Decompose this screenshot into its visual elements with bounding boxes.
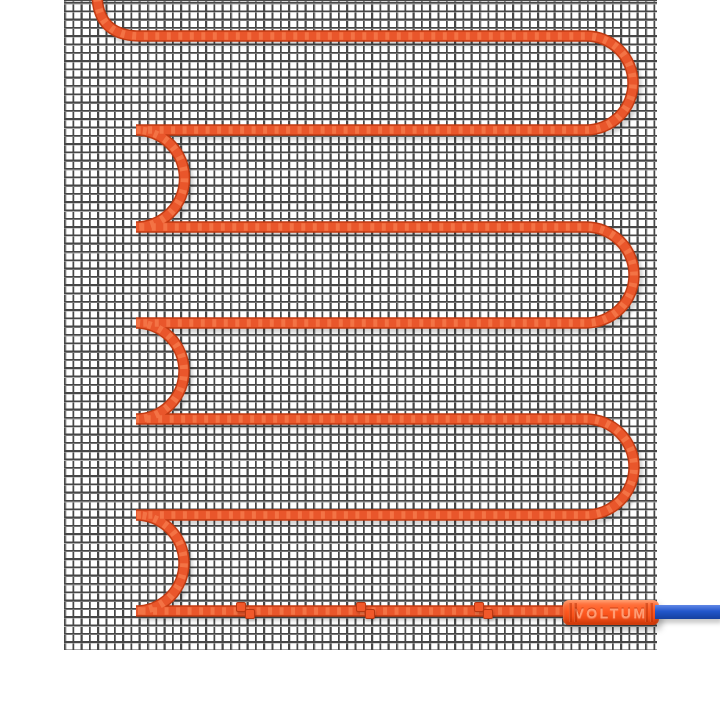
- heating-mat-product-image: VOLTUM: [0, 0, 720, 720]
- connector-ridge: [645, 603, 648, 622]
- connector-ridge: [650, 603, 653, 622]
- connector-ridge: [574, 603, 577, 622]
- connector-brand-label: VOLTUM: [574, 605, 647, 621]
- power-connector: VOLTUM: [563, 600, 659, 625]
- mesh-grid: [64, 0, 657, 650]
- cable-clip: [473, 601, 495, 621]
- clip-tab: [365, 609, 375, 619]
- clip-tab: [245, 609, 255, 619]
- connector-ridge: [569, 603, 572, 622]
- cold-lead-cable: [655, 605, 720, 619]
- cable-clip: [235, 601, 257, 621]
- clip-tab: [483, 609, 493, 619]
- cable-clip: [355, 601, 377, 621]
